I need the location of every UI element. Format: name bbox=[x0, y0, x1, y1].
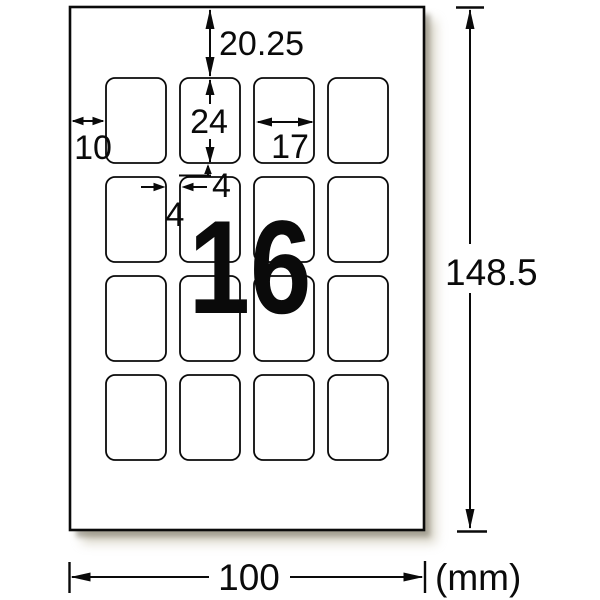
dim-sheet-width: 100 bbox=[218, 557, 280, 598]
unit-label: (mm) bbox=[435, 557, 521, 598]
label-diagram-canvas: 16 20.25 24 17 10 4 4 148.5 100 (mm) bbox=[0, 0, 600, 600]
arrowhead-down-icon bbox=[466, 509, 475, 529]
label-count-number: 16 bbox=[189, 192, 312, 341]
dim-label-width: 17 bbox=[271, 128, 309, 166]
arrowhead-left-icon bbox=[71, 573, 91, 582]
dim-label-height: 24 bbox=[190, 103, 228, 141]
dim-sheet-height: 148.5 bbox=[445, 252, 538, 293]
dim-left-margin: 10 bbox=[74, 129, 112, 167]
arrowhead-up-icon bbox=[466, 9, 475, 29]
dim-gap-vertical: 4 bbox=[166, 196, 185, 234]
arrowhead-right-icon bbox=[404, 573, 424, 582]
dim-top-margin: 20.25 bbox=[219, 25, 304, 63]
dim-gap-horizontal: 4 bbox=[212, 167, 231, 205]
